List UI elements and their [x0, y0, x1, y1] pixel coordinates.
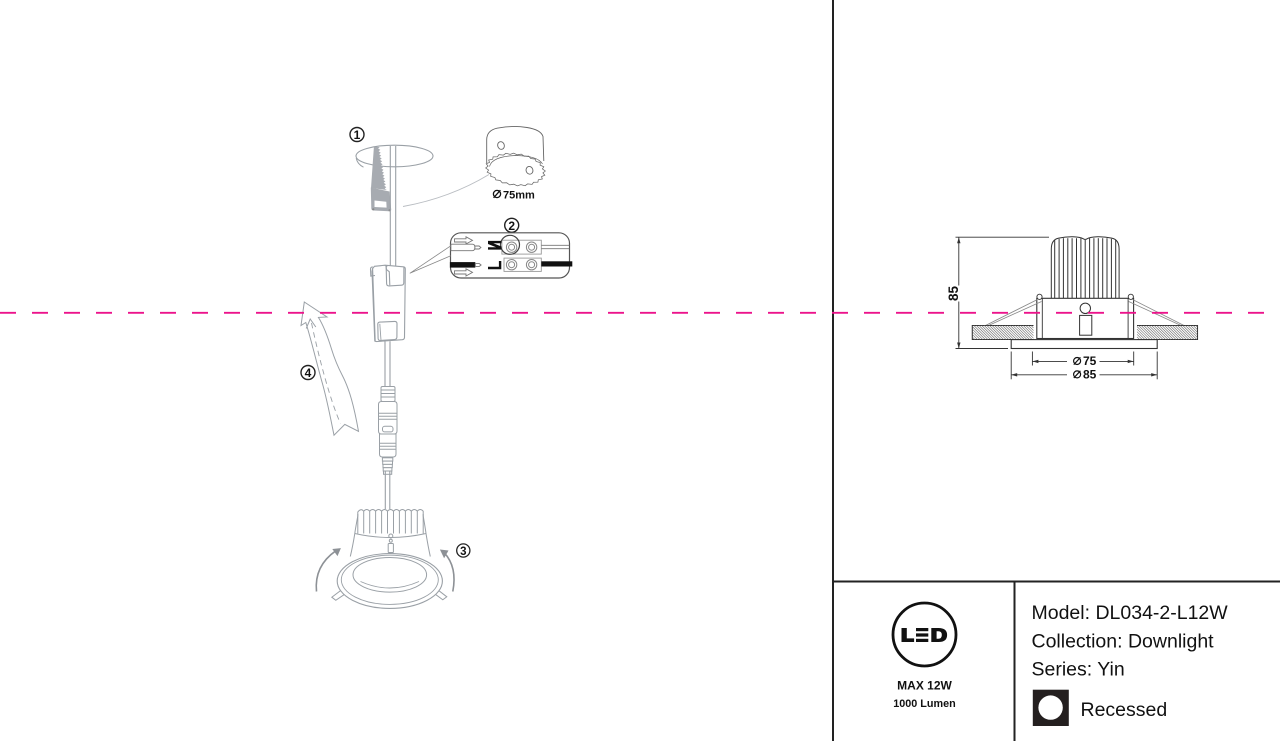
svg-text:MAX 12W: MAX 12W: [897, 678, 952, 692]
svg-text:2: 2: [508, 219, 515, 233]
svg-text:3: 3: [460, 546, 466, 558]
svg-text:85: 85: [946, 286, 961, 302]
svg-text:Recessed: Recessed: [1081, 699, 1168, 721]
svg-text:Model: DL034-2-L12W: Model: DL034-2-L12W: [1032, 602, 1229, 624]
svg-text:4: 4: [305, 366, 312, 380]
svg-text:75mm: 75mm: [503, 189, 535, 201]
svg-text:1: 1: [354, 128, 361, 142]
svg-text:Collection: Downlight: Collection: Downlight: [1032, 630, 1215, 652]
svg-text:75: 75: [1083, 354, 1097, 368]
svg-text:1000 Lumen: 1000 Lumen: [893, 698, 955, 710]
svg-text:85: 85: [1083, 368, 1097, 382]
svg-text:Series: Yin: Series: Yin: [1032, 658, 1125, 680]
